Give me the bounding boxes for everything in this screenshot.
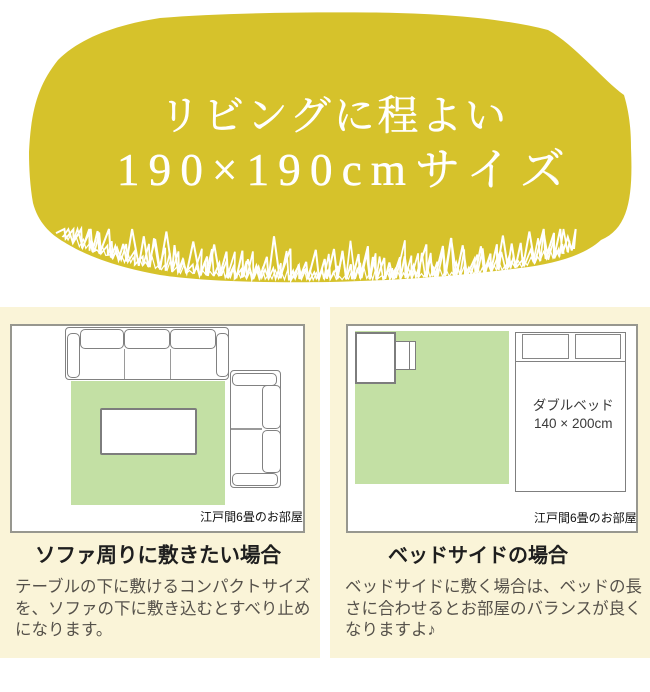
svg-text:190×190cmサイズ: 190×190cmサイズ [117, 145, 574, 195]
svg-text:リビングに程よい: リビングに程よい [159, 93, 509, 139]
